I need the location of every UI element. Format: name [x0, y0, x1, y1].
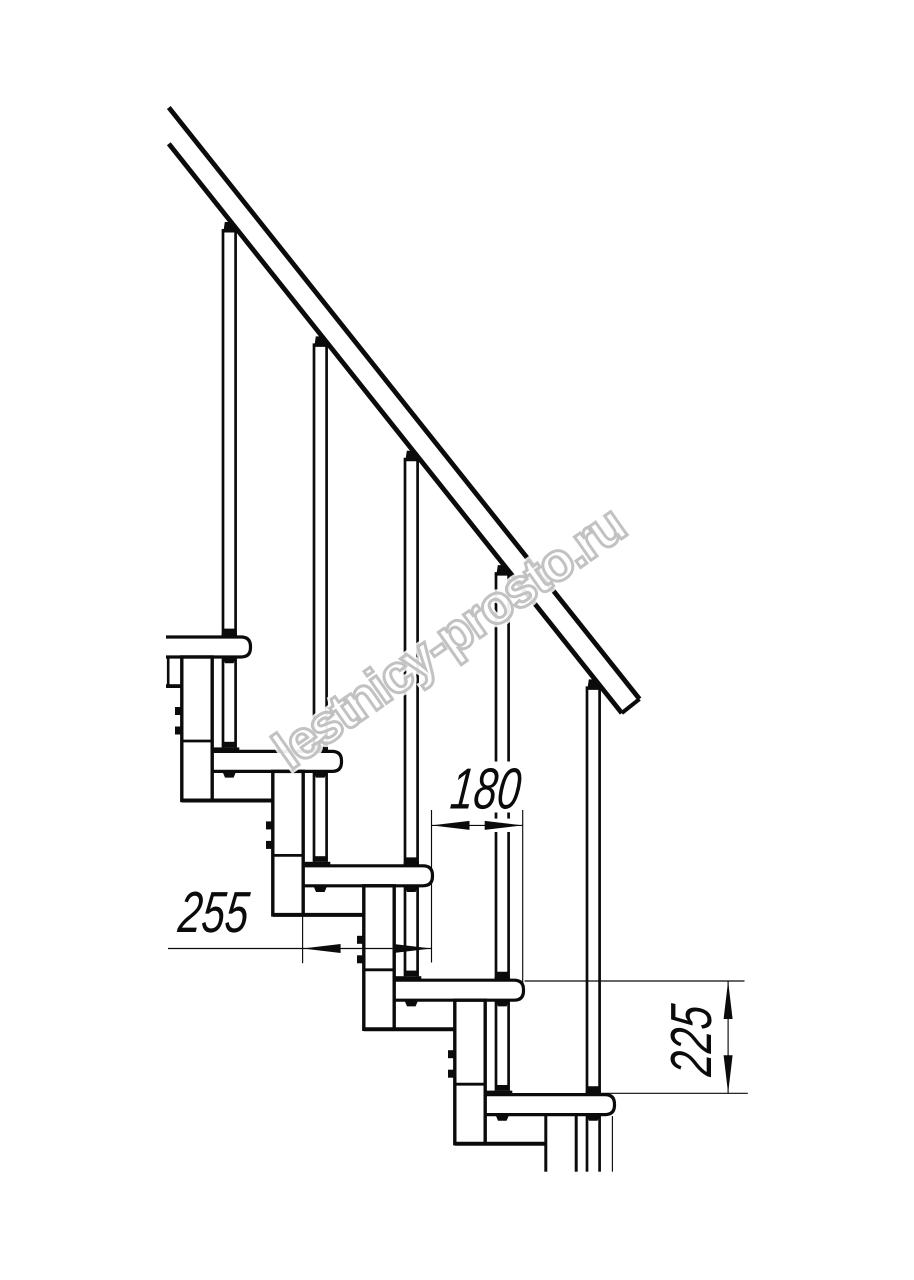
svg-text:225: 225 [658, 1001, 723, 1079]
svg-text:180: 180 [448, 756, 525, 821]
svg-text:255: 255 [175, 879, 253, 944]
